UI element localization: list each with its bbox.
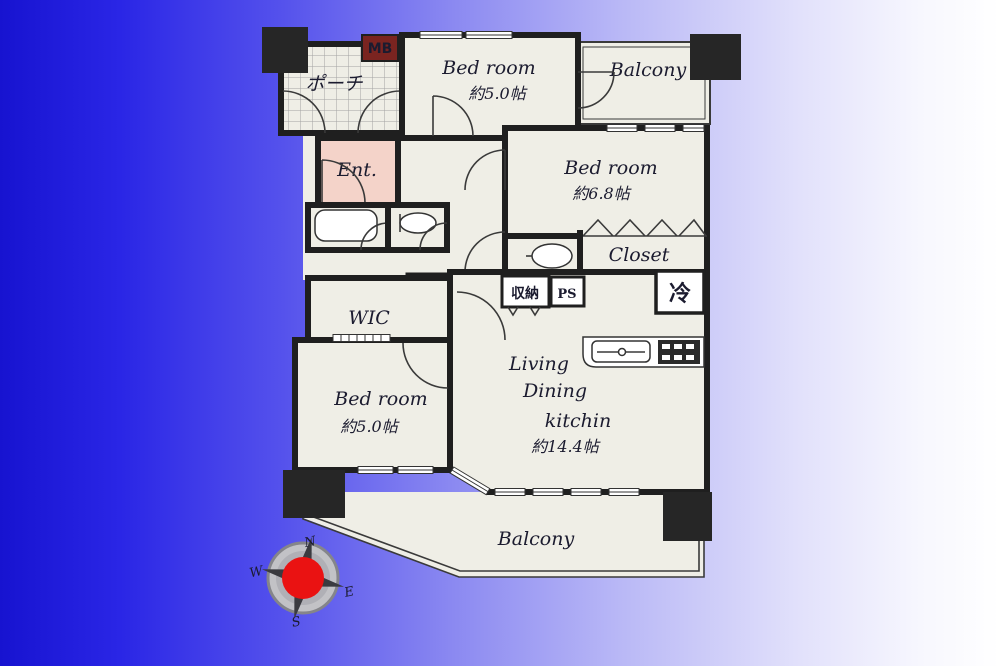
balcony-top-label: Balcony (609, 59, 687, 81)
room-bathroom (308, 205, 388, 250)
floor-plan-page: Balcony Balcony ポーチ MB Bed room 約5.0帖 Be… (0, 0, 1000, 666)
meter-box: MB (362, 35, 398, 61)
pillar-bottom-left (283, 470, 345, 518)
meter-box-label: MB (368, 41, 393, 57)
compass-west: W (248, 564, 266, 582)
bedroom-right-size: 約6.8帖 (572, 184, 631, 203)
bedroom-bottom-size: 約5.0帖 (340, 417, 399, 436)
storage-label: 収納 (511, 285, 539, 302)
wic-label: WIC (348, 307, 390, 329)
wic-sliding-door (333, 335, 390, 342)
balcony-bottom: Balcony (303, 492, 704, 577)
pillar-bottom-right (663, 492, 712, 541)
closet-label: Closet (609, 244, 670, 266)
balcony-bottom-label: Balcony (497, 528, 575, 550)
room-bedroom-bottom: Bed room 約5.0帖 (295, 340, 450, 470)
ldk-line1: Living (508, 353, 569, 375)
pipe-space-box: PS (551, 277, 584, 306)
room-toilet (388, 205, 447, 250)
floorplan-svg: Balcony Balcony ポーチ MB Bed room 約5.0帖 Be… (0, 0, 1000, 666)
kitchen-faucet (619, 349, 626, 356)
room-entrance: Ent. (318, 138, 398, 205)
toilet-bowl (400, 213, 436, 233)
compass-south: S (290, 614, 302, 631)
bedroom-right-name: Bed room (563, 157, 657, 179)
bedroom-top-name: Bed room (441, 57, 535, 79)
compass-east: E (342, 584, 356, 601)
porch-label: ポーチ (305, 73, 363, 95)
kitchen-stove (658, 340, 700, 364)
pillar-top-right (690, 34, 741, 80)
room-wic: WIC (308, 278, 450, 340)
ldk-size: 約14.4帖 (531, 437, 601, 456)
ldk-line2: Dining (522, 380, 587, 402)
bedroom-bottom-name: Bed room (333, 388, 427, 410)
bathtub (315, 210, 377, 241)
refrigerator-label: 冷 (669, 281, 691, 307)
bedroom-right-walls (505, 128, 707, 236)
pipe-space-label: PS (557, 287, 576, 302)
pillar-top-left (262, 27, 308, 73)
compass: N W E S (248, 528, 356, 631)
ldk-line3: kitchin (545, 410, 611, 432)
refrigerator-space: 冷 (656, 271, 704, 313)
washbasin (532, 244, 572, 268)
bedroom-top-size: 約5.0帖 (468, 84, 527, 103)
compass-center-dot (282, 557, 324, 599)
